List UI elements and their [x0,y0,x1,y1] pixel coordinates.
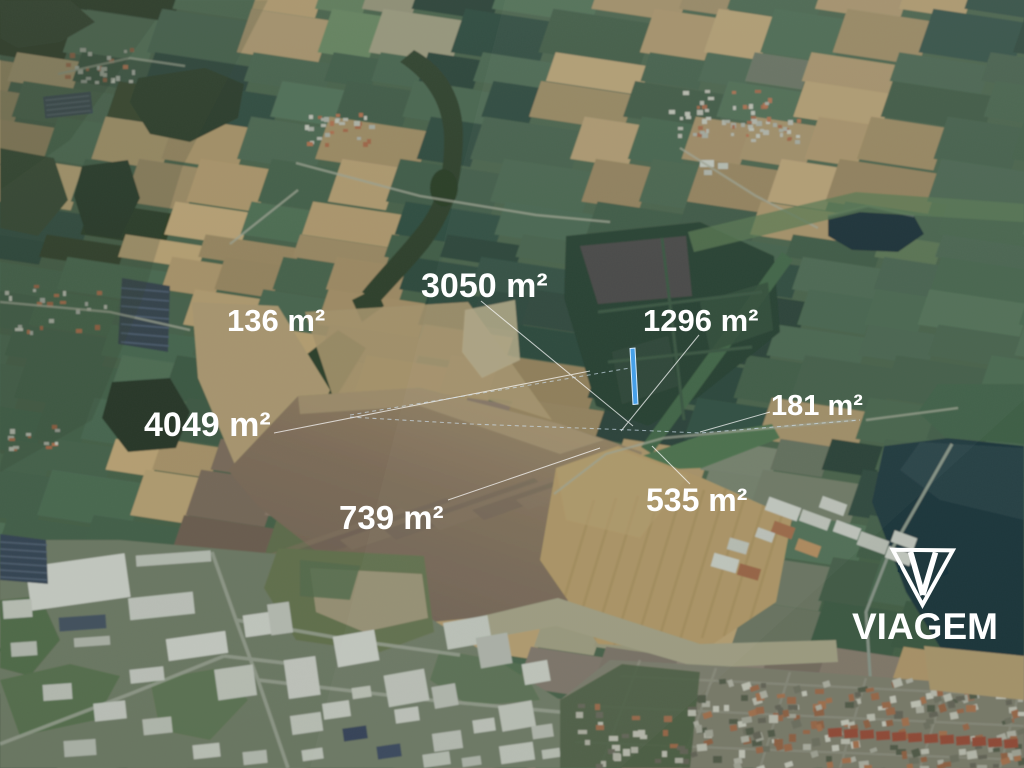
svg-text:VIAGEM: VIAGEM [852,606,998,647]
svg-text:181 m²: 181 m² [771,390,863,422]
svg-text:535 m²: 535 m² [646,482,747,518]
svg-text:3050 m²: 3050 m² [421,267,548,305]
svg-text:4049 m²: 4049 m² [144,406,271,444]
svg-text:136 m²: 136 m² [227,303,325,338]
svg-text:739 m²: 739 m² [339,499,444,536]
svg-text:1296 m²: 1296 m² [643,303,758,338]
